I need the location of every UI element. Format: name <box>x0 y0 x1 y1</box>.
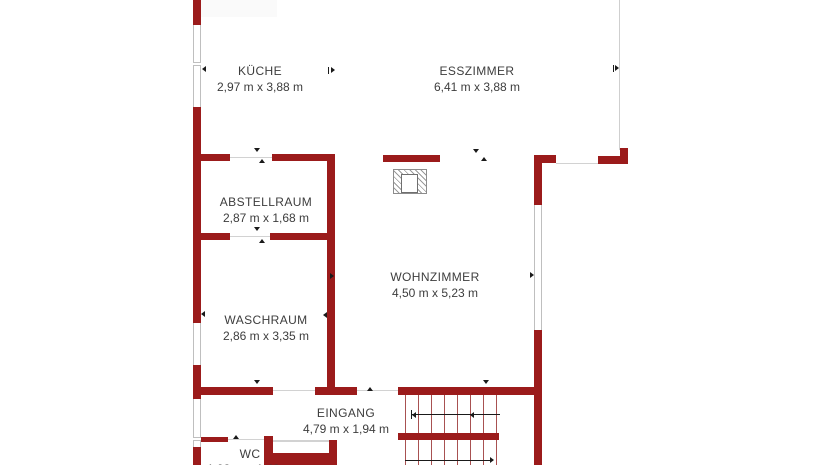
storage-door-top-threshold <box>230 157 272 158</box>
dining-corner-wall-v <box>620 148 628 164</box>
dining-living-passage-marker-b <box>481 157 487 161</box>
room-dims: 2,97 m x 3,88 m <box>217 79 303 95</box>
storage-bottom-door-marker-a <box>254 227 260 231</box>
stair-down-arrow-line <box>405 460 493 461</box>
dining-glass-wall <box>619 0 620 150</box>
stair-down-arrowhead <box>490 457 494 463</box>
stair-doorway-marker <box>483 380 489 384</box>
room-label-abstellraum: ABSTELLRAUM 2,87 m x 1,68 m <box>220 194 312 226</box>
room-name: EINGANG <box>303 405 389 421</box>
kitchen-dining-opening-marker <box>331 67 335 73</box>
room-label-waschraum: WASCHRAUM 2,86 m x 3,35 m <box>223 312 309 344</box>
left-exterior-wall-bottom <box>193 447 201 465</box>
entrance-opening-threshold <box>357 390 398 391</box>
wc-top-wall <box>201 437 228 442</box>
chimney-flue <box>401 174 418 193</box>
room-name: KÜCHE <box>217 63 303 79</box>
kitchen-window <box>193 25 201 107</box>
room-dims: 2,87 m x 1,68 m <box>220 210 312 226</box>
floor-plan: KÜCHE 2,97 m x 3,88 m ESSZIMMER 6,41 m x… <box>0 0 820 465</box>
storage-top-door-marker-a <box>254 148 260 152</box>
room-dims: 4,50 m x 5,23 m <box>390 285 479 301</box>
kitchen-storage-wall-left <box>201 154 230 161</box>
room-dims: 4,79 m x 1,94 m <box>303 421 389 437</box>
washroom-door-threshold <box>273 390 315 391</box>
left-exterior-wall-mid <box>193 107 201 323</box>
wc-door-marker <box>233 435 239 439</box>
storage-bottom-door-marker-b <box>259 239 265 243</box>
kitchen-window-marker <box>202 66 206 72</box>
entry-niche-window-line <box>273 440 329 442</box>
room-name: WC <box>207 446 293 462</box>
room-dims: 1,93 m x 1,43 m <box>207 461 293 465</box>
room-label-wc: WC 1,93 m x 1,43 m <box>207 446 293 465</box>
room-name: ABSTELLRAUM <box>220 194 312 210</box>
storage-washroom-wall-left <box>201 233 230 240</box>
storage-top-door-marker-b <box>259 159 265 163</box>
living-right-wall-top <box>534 155 542 205</box>
room-dims: 2,86 m x 3,35 m <box>223 328 309 344</box>
storage-washroom-wall-right <box>270 233 335 240</box>
living-window <box>534 205 542 330</box>
dining-living-wall <box>383 155 440 162</box>
stair-mid-wall <box>398 433 499 440</box>
room-label-eingang: EINGANG 4,79 m x 1,94 m <box>303 405 389 437</box>
washroom-window-marker <box>201 311 205 317</box>
wc-door-threshold <box>228 439 264 440</box>
faint-area-top-left <box>201 0 277 17</box>
room-name: WASCHRAUM <box>223 312 309 328</box>
room-label-esszimmer: ESSZIMMER 6,41 m x 3,88 m <box>434 63 520 95</box>
storage-door-bottom-threshold <box>230 236 270 237</box>
dining-window-line <box>556 163 598 164</box>
entrance-opening-marker <box>367 387 373 391</box>
washroom-bottom-wall <box>193 387 273 395</box>
washroom-wall-tick-a <box>330 273 334 279</box>
dining-glass-marker-tick <box>613 65 614 72</box>
kitchen-window-divider <box>193 62 201 66</box>
dining-glass-marker <box>615 65 619 71</box>
kitchen-storage-wall-right <box>272 154 335 161</box>
room-name: ESSZIMMER <box>434 63 520 79</box>
wc-window-divider <box>193 437 201 441</box>
chimney-symbol <box>393 169 427 194</box>
entrance-top-wall-right <box>398 387 534 395</box>
room-label-wohnzimmer: WOHNZIMMER 4,50 m x 5,23 m <box>390 269 479 301</box>
entrance-top-wall-mid <box>315 387 357 395</box>
stair-up-arrowhead-1 <box>412 412 416 418</box>
washroom-window <box>193 323 201 365</box>
living-window-marker <box>530 272 534 278</box>
living-right-wall-bottom <box>534 330 542 465</box>
stair-up-arrow-line <box>412 414 500 415</box>
dining-living-passage-marker-a <box>473 149 479 153</box>
washroom-door-marker <box>254 380 260 384</box>
room-dims: 6,41 m x 3,88 m <box>434 79 520 95</box>
left-exterior-wall-top <box>193 0 201 25</box>
stair-up-arrowhead-2 <box>470 412 474 418</box>
washroom-wall-tick-b <box>323 312 327 318</box>
kitchen-dining-opening-tick <box>328 67 329 74</box>
room-label-kueche: KÜCHE 2,97 m x 3,88 m <box>217 63 303 95</box>
room-name: WOHNZIMMER <box>390 269 479 285</box>
